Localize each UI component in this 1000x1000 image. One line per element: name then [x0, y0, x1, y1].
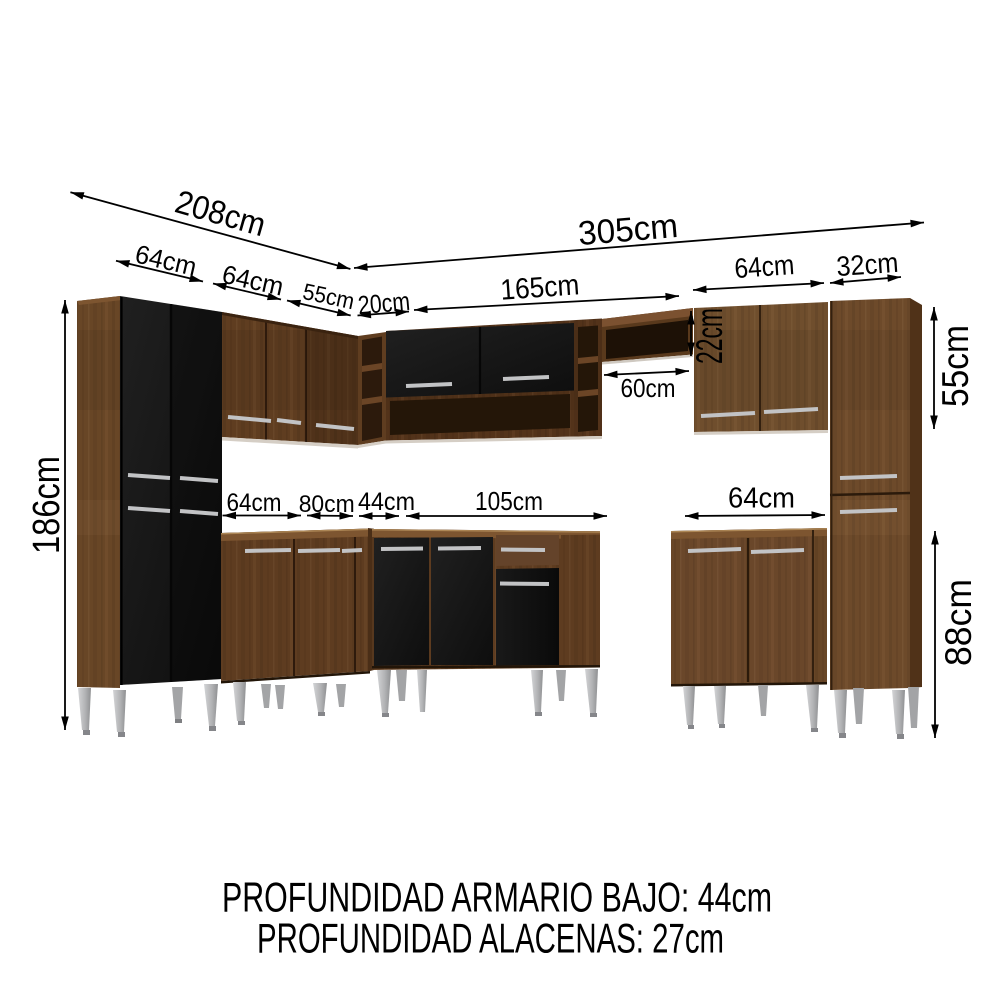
svg-text:88cm: 88cm — [938, 579, 979, 666]
svg-text:186cm: 186cm — [26, 456, 68, 554]
svg-text:60cm: 60cm — [621, 373, 676, 403]
svg-text:22cm: 22cm — [689, 308, 730, 364]
svg-text:20cm: 20cm — [357, 286, 411, 320]
svg-text:PROFUNDIDAD ARMARIO BAJO: 44cm: PROFUNDIDAD ARMARIO BAJO: 44cm — [222, 874, 772, 921]
svg-text:80cm: 80cm — [299, 491, 355, 518]
svg-text:64cm: 64cm — [728, 483, 795, 515]
svg-text:32cm: 32cm — [835, 247, 899, 282]
svg-text:64cm: 64cm — [733, 249, 795, 284]
svg-text:105cm: 105cm — [475, 486, 543, 516]
svg-text:PROFUNDIDAD ALACENAS: 27cm: PROFUNDIDAD ALACENAS: 27cm — [257, 915, 724, 962]
svg-text:44cm: 44cm — [358, 488, 415, 516]
svg-text:64cm: 64cm — [227, 489, 282, 517]
svg-text:165cm: 165cm — [499, 269, 580, 306]
svg-text:55cm: 55cm — [935, 325, 976, 407]
